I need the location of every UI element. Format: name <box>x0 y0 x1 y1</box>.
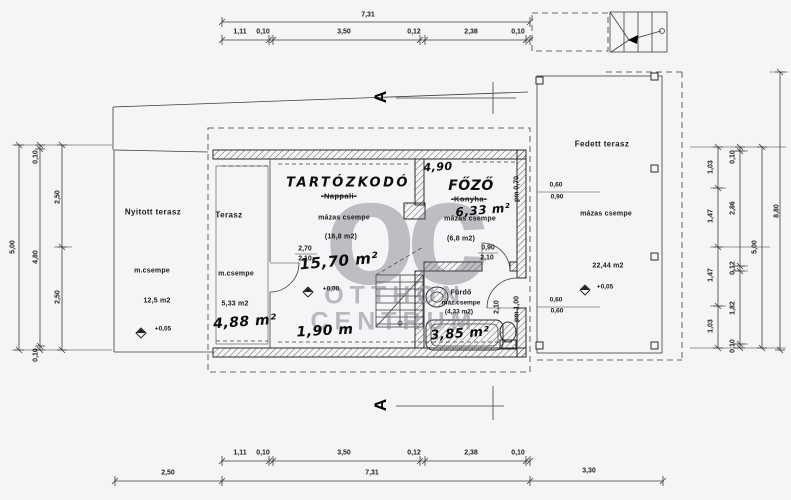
room-area: 12,5 m2 <box>143 298 170 305</box>
room-area: 5,33 m2 <box>221 301 248 308</box>
room-area: (6,8 m2) <box>447 236 475 243</box>
dim-right-bay: 1,47 <box>708 209 715 223</box>
handwritten-width-fozo: 4,90 <box>423 160 453 175</box>
parapet-height: pm 0,70 <box>514 176 521 202</box>
room-level: +0,00 <box>323 286 339 293</box>
dim-right-bay: 1,03 <box>708 160 715 174</box>
dim-top-total: 7,31 <box>361 12 375 19</box>
dim-bottom-seg: 0,10 <box>511 450 525 457</box>
dim-top-seg: 0,10 <box>511 29 525 36</box>
opening-dim: 0,60 <box>550 182 563 189</box>
room-surface: mázas csempe <box>444 216 496 223</box>
room-surface: máz.csempe <box>442 300 481 307</box>
dim-left-overall: 5,00 <box>10 240 17 254</box>
dim-bottom-seg: 0,12 <box>407 450 421 457</box>
room-name-terasz: Terasz <box>215 211 242 220</box>
open-terrace-outline <box>114 150 213 352</box>
dim-right-bay: 1,03 <box>708 319 715 333</box>
room-name-nyitott-terasz: Nyitott terasz <box>125 208 181 217</box>
room-surface: m.csempe <box>134 268 170 275</box>
dim-right-seg: 2,86 <box>730 201 737 215</box>
dim-right-seg: 0,10 <box>730 150 737 164</box>
dim-bottom-total: 7,31 <box>365 470 379 477</box>
dim-right-bay: 1,47 <box>708 268 715 282</box>
parapet-height: pm 1,00 <box>514 296 521 322</box>
toilet-tank <box>500 340 516 349</box>
eave-lines <box>113 92 528 150</box>
handwritten-bottom-note: 1,90 m <box>296 322 354 341</box>
room-name-fozo: FŐZŐ <box>448 178 494 194</box>
dim-left-seg: 0,10 <box>33 150 40 164</box>
room-name-furdo: Fürdő <box>451 290 472 297</box>
dim-right-seg: 0,12 <box>730 261 737 275</box>
section-marker-top: A <box>371 91 391 103</box>
dim-right-overall: 5,00 <box>752 240 759 254</box>
opening-dim: 0,90 <box>551 194 564 201</box>
dim-bottom-seg: 2,38 <box>464 450 478 457</box>
room-surface: mázas csempe <box>318 215 370 222</box>
dim-top-seg: 0,10 <box>256 29 270 36</box>
opening-dim: 0,60 <box>550 297 563 304</box>
dim-bottom-total: 3,30 <box>582 468 596 475</box>
dim-bottom-seg: 0,10 <box>256 450 270 457</box>
exterior-stair <box>610 12 667 52</box>
dim-left-seg: 4,80 <box>33 250 40 264</box>
room-area: (16,8 m2) <box>325 234 357 241</box>
room-level: +0,05 <box>597 284 613 291</box>
opening-height: 2,10 <box>494 300 501 314</box>
opening-height: 2,10 <box>480 255 494 262</box>
opening-dim: 0,60 <box>551 308 564 315</box>
opening-width: 0,90 <box>481 245 495 252</box>
dim-bottom-seg: 3,50 <box>337 450 351 457</box>
room-level: +0,05 <box>155 326 171 333</box>
room-area: (4,33 m2) <box>445 309 473 316</box>
room-area: 22,44 m2 <box>592 263 623 270</box>
opening-width: 2,70 <box>298 246 312 253</box>
dim-bottom-total: 2,50 <box>161 470 175 477</box>
dim-right-total: 8,80 <box>774 204 781 218</box>
dim-top-seg: 3,50 <box>337 29 351 36</box>
room-name-tartozkodo: TARTÓZKODÓ <box>286 176 410 191</box>
dim-right-seg: 0,10 <box>730 339 737 353</box>
toilet-icon <box>500 322 516 342</box>
section-marker-bottom: A <box>371 399 391 411</box>
room-name-fedett-terasz: Fedett terasz <box>575 140 630 149</box>
room-surface: m.csempe <box>218 271 254 278</box>
dim-top-seg: 2,38 <box>464 29 478 36</box>
dim-left-half: 2,50 <box>55 190 62 204</box>
dim-left-half: 2,50 <box>55 290 62 304</box>
dim-bottom-seg: 1,11 <box>233 450 246 457</box>
floor-plan-sheet: oc OTTHON CENTRUM A A 7,31 1,11 0,10 3,5… <box>0 0 791 500</box>
dim-top-seg: 0,12 <box>407 29 421 36</box>
dim-right-seg: 1,82 <box>730 301 737 315</box>
dim-left-seg: 0,10 <box>33 348 40 362</box>
room-surface: mázas csempe <box>580 211 632 218</box>
dim-top-seg: 1,11 <box>233 29 246 36</box>
opening-height: 2,10 <box>298 256 312 263</box>
room-old-name-nappali: -Nappali- <box>321 192 357 201</box>
